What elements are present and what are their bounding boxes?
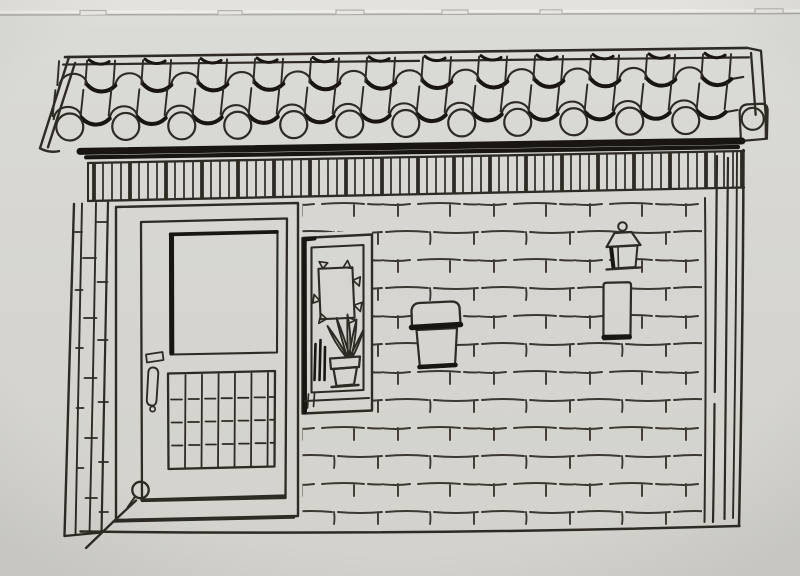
sketch-canvas: paper top edge with small tear tabs hand… [0, 0, 800, 576]
photo-vignette [0, 0, 800, 576]
sketch-photo: paper top edge with small tear tabs hand… [0, 0, 800, 576]
